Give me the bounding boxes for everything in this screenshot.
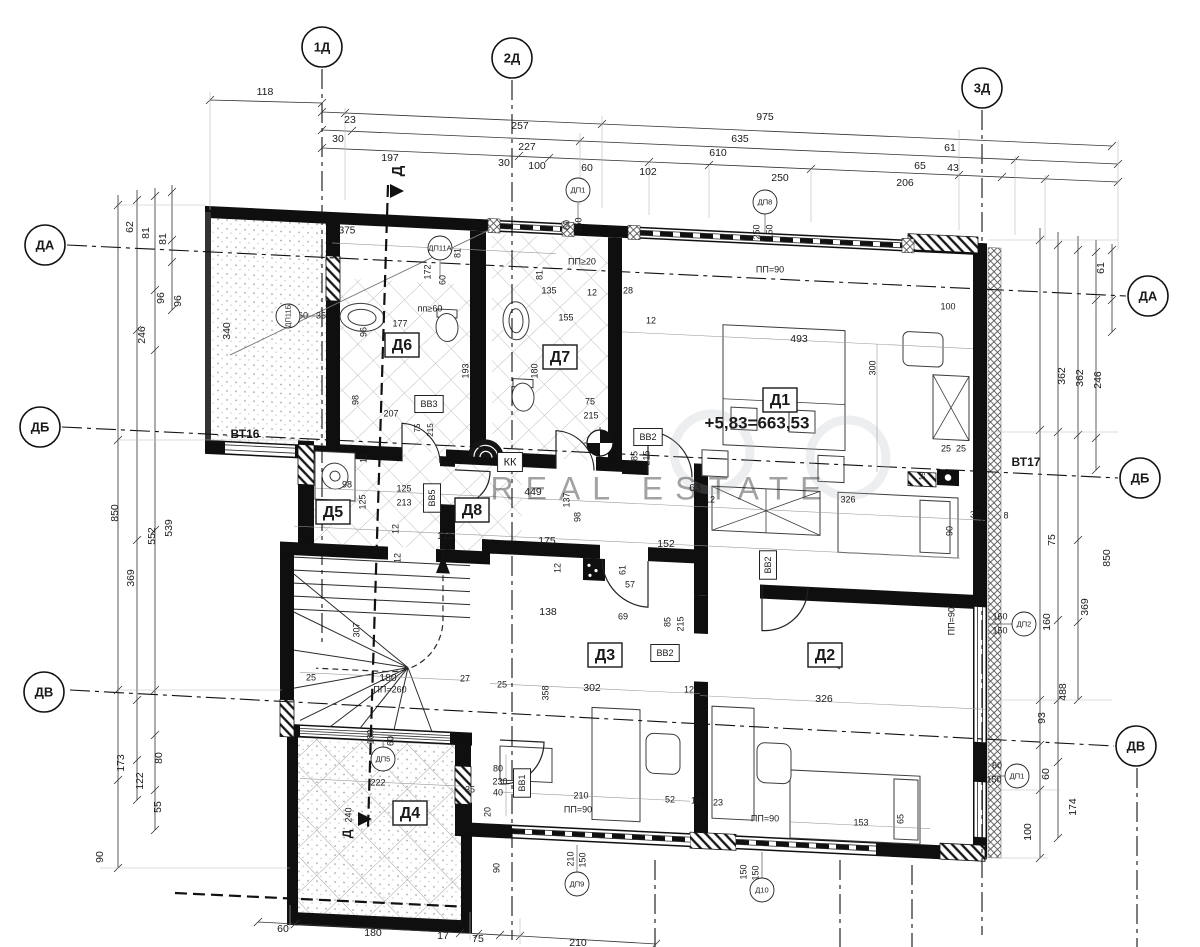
dim-text: 35 (316, 310, 326, 320)
fixture-tag-ДП5: ДП5 (371, 747, 395, 771)
blueprint-page: 1182325797530227635610197301006010225061… (0, 0, 1200, 947)
boxed-label: BB2 (651, 645, 679, 662)
dim-text: 61 (1095, 262, 1107, 274)
room-label-text: Д8 (462, 502, 482, 519)
room-label-Д4: Д4 (393, 801, 427, 825)
dim-text: 100 (940, 301, 955, 311)
axis-bubble-ДВ: ДВ (1116, 726, 1156, 766)
dim-text: 60 (992, 760, 1002, 770)
dim-text: 25 (497, 679, 507, 689)
dim-text: 20 (482, 807, 492, 817)
room-label-Д2: Д2 (808, 643, 842, 667)
dim-text: 610 (709, 147, 727, 159)
axis-bubble-text: ДБ (31, 419, 50, 434)
dim-text: 98 (572, 512, 582, 522)
dim-text: 152 (657, 538, 675, 550)
dim-text: 227 (518, 141, 536, 153)
room-label-Д6: Д6 (385, 333, 419, 357)
boxed-label-text: КК (504, 456, 517, 468)
boxed-label-text: BB1 (517, 774, 527, 791)
dim-text: пп≥60 (418, 303, 443, 313)
dim-text: 93 (1036, 712, 1048, 724)
dim-text: ВТ17 (1012, 455, 1041, 469)
dim-text: 362 (1074, 369, 1086, 387)
boxed-label-text: BB2 (656, 648, 673, 658)
dim-text: 138 (539, 606, 557, 618)
dim-text: 98 (350, 395, 360, 405)
dim-text: 850 (109, 504, 121, 522)
dim-text: 81 (140, 227, 152, 239)
room-label-Д3: Д3 (588, 643, 622, 667)
dim-text: 90 (944, 526, 954, 536)
dim-text: 40 (493, 787, 503, 797)
dim-text: 369 (1079, 598, 1091, 616)
dim-text: 12 (390, 524, 400, 534)
dim-text: 100 (1022, 823, 1034, 841)
dim-text: 8 (1003, 510, 1008, 520)
fixture-tag-ДП11А: ДП11А (428, 236, 452, 260)
boxed-label: BB3 (415, 396, 443, 413)
dim-text: 150 (986, 774, 1001, 784)
dim-text: 250 (751, 224, 761, 239)
dim-text: 17 (437, 930, 449, 942)
dim-text: 302 (583, 682, 601, 694)
axis-bubble-ДА: ДА (1128, 276, 1168, 316)
dim-text: 215 (583, 410, 598, 420)
dim-text: Д (340, 829, 354, 838)
dim-text: 230 (492, 776, 507, 786)
dim-text: 12 (646, 315, 656, 325)
dim-text: 552 (146, 527, 158, 545)
dim-text: 153 (853, 817, 868, 827)
dim-text: 135 (541, 285, 556, 295)
dim-text: 125 (357, 494, 367, 509)
dim-text: ПП≥20 (568, 256, 596, 266)
dim-text: 362 (1056, 367, 1068, 385)
dim-text: 300 (867, 360, 877, 375)
dim-text: 118 (257, 86, 274, 98)
dim-text: 172 (422, 264, 432, 279)
dim-text: 12 (684, 684, 694, 694)
dim-text: 100 (528, 160, 546, 172)
fixture-tag-text: ДП1 (571, 185, 586, 194)
dim-text: 90 (94, 851, 106, 863)
dim-text: 850 (1101, 549, 1113, 567)
dim-text: 240 (343, 807, 353, 822)
dim-text: 155 (558, 312, 573, 322)
dim-text: 81 (157, 233, 169, 245)
fixture-tag-ДП2: ДП2 (1012, 612, 1036, 636)
boxed-label: BB2 (760, 551, 777, 579)
room-label-text: Д3 (595, 647, 615, 664)
dim-text: 326 (815, 693, 833, 705)
dim-text: 60 (437, 275, 447, 285)
fixture-tag-text: ДП2 (1017, 619, 1032, 628)
axis-bubble-ДБ: ДБ (20, 407, 60, 447)
dim-text: 160 (1041, 613, 1053, 631)
dim-text: 81 (452, 248, 462, 258)
dim-text: ВТ16 (231, 427, 260, 441)
dim-text: 75 (472, 933, 484, 945)
dim-text: 25 (306, 672, 316, 682)
axis-bubble-2Д: 2Д (492, 38, 532, 78)
axis-bubble-ДБ: ДБ (1120, 458, 1160, 498)
dim-text: 43 (947, 162, 959, 174)
fixture-tag-text: ДП9 (570, 879, 585, 888)
dim-text: 55 (152, 801, 164, 813)
staircase (294, 548, 470, 733)
fixture-tag-text: ДП8 (758, 197, 773, 206)
dim-text: 210 (565, 851, 575, 866)
dim-text: 539 (163, 519, 175, 537)
fixture-tag-ДП9: ДП9 (565, 872, 589, 896)
dim-text: 62 (124, 221, 136, 233)
room-label-text: Д6 (392, 337, 412, 354)
dim-text: ПП=90 (564, 804, 592, 814)
dim-text: 215 (675, 616, 685, 631)
dim-text: 96 (155, 292, 167, 304)
fixture-tag-text: ДП5 (376, 754, 391, 763)
dim-text: 222 (370, 777, 385, 787)
dim-text: 180 (365, 729, 375, 744)
fixture-tag-ДП1: ДП1 (1005, 764, 1029, 788)
dim-text: 246 (136, 326, 148, 344)
dim-text: 52 (665, 794, 675, 804)
dim-text: 207 (383, 408, 398, 418)
dim-text: 98 (342, 479, 352, 489)
dim-text: 111 (437, 530, 453, 542)
dim-text: 246 (1092, 371, 1104, 389)
fixture-tag-ДП8: ДП8 (753, 190, 777, 214)
dim-text: 177 (392, 318, 407, 328)
dim-text: 12 (691, 795, 701, 805)
boxed-label-text: BB2 (639, 432, 656, 442)
dim-text: 975 (756, 111, 774, 123)
dim-text: 150 (577, 852, 587, 867)
dim-text: ПП=90 (751, 813, 779, 823)
dim-text: 65 (895, 814, 905, 824)
dim-text: ПП=260 (373, 684, 406, 694)
dim-text: 27 (460, 673, 470, 683)
dim-text: 122 (134, 772, 146, 790)
floorplan-canvas: 1182325797530227635610197301006010225061… (0, 0, 1200, 947)
dim-text: 25 (956, 443, 966, 453)
dim-text: 215 (641, 450, 651, 465)
dim-text: ПП=90 (756, 264, 784, 274)
room-label-Д1: Д1 (763, 388, 797, 412)
dim-text: 180 (364, 927, 382, 939)
dim-text: 12 (392, 553, 402, 563)
dim-text: 65 (914, 160, 926, 172)
dim-text: 193 (460, 363, 470, 378)
room-label-text: Д1 (770, 392, 790, 409)
dim-text: 102 (639, 166, 657, 178)
dim-text: 35 (465, 784, 475, 794)
dim-text: 85 (662, 617, 672, 627)
dim-text: 174 (1067, 798, 1079, 816)
dim-text: 25 (941, 443, 951, 453)
dim-text: 30 (332, 133, 344, 145)
room-label-Д8: Д8 (455, 498, 489, 522)
boxed-label: КК (498, 453, 523, 472)
dim-text: 326 (840, 494, 855, 504)
axis-bubble-3Д: 3Д (962, 68, 1002, 108)
dim-text: 75 (413, 423, 422, 432)
section-arrow-top (390, 184, 404, 198)
dim-text: Д (389, 165, 406, 176)
room-label-text: Д5 (323, 504, 343, 521)
room-label-Д5: Д5 (316, 500, 350, 524)
room-label-Д7: Д7 (543, 345, 577, 369)
dim-text: ПП=90. (946, 605, 956, 636)
boxed-label: BB2 (634, 429, 662, 446)
dim-text: +5,83=663,53 (705, 413, 810, 432)
dim-text: 197 (381, 152, 399, 164)
dim-text: 180 (379, 672, 397, 684)
axis-bubble-text: 2Д (504, 50, 521, 65)
dim-text: 81 (534, 270, 544, 280)
dim-text: 12 (358, 453, 368, 463)
axis-bubble-1Д: 1Д (302, 27, 342, 67)
dim-text: 257 (511, 120, 529, 132)
fixture-tag-text: Д10 (755, 885, 768, 894)
dim-text: 493 (790, 333, 808, 345)
dim-text: 635 (731, 133, 749, 145)
dim-text: 60 (385, 736, 395, 746)
room-label-text: Д7 (550, 349, 570, 366)
dim-text: 175 (538, 535, 556, 547)
dim-text: REAL ESTATE (490, 470, 833, 506)
axis-bubble-text: 3Д (974, 80, 991, 95)
dim-text: 61 (617, 565, 627, 575)
boxed-label-text: BB3 (420, 399, 437, 409)
boxed-label: BB5 (424, 484, 441, 512)
dim-text: 180 (529, 363, 539, 378)
dim-text: 210 (569, 937, 587, 947)
dim-text: 60 (1040, 768, 1052, 780)
dim-text: 96 (358, 327, 368, 337)
dim-text: 369 (125, 569, 137, 587)
dim-text: 19 (918, 471, 927, 480)
dim-text: 375 (339, 226, 356, 237)
boxed-label-text: BB2 (763, 556, 773, 573)
dim-text: 488 (1057, 683, 1069, 701)
fixture-tag-text: ДП11А (428, 243, 451, 252)
dim-text: 307 (351, 622, 361, 637)
dim-text: 250 (771, 172, 789, 184)
fixture-tag-Д10: Д10 (750, 878, 774, 902)
dim-text: 23 (713, 797, 723, 807)
dim-text: 60 (581, 162, 593, 174)
dim-text: 150 (764, 224, 774, 239)
fixture-tag-ДП11Б: ДП11Б (276, 304, 300, 328)
dim-text: 210 (573, 790, 588, 800)
dim-text: 69 (618, 611, 628, 621)
axis-bubble-text: ДБ (1131, 470, 1150, 485)
dim-text: 150 (573, 217, 583, 232)
fixture-tag-ДП1: ДП1 (566, 178, 590, 202)
dim-text: 150 (992, 625, 1007, 635)
dim-text: 28 (623, 285, 633, 295)
room-label-text: Д4 (400, 805, 420, 822)
axis-bubble-text: 1Д (314, 39, 331, 54)
dim-text: 213 (396, 497, 411, 507)
fixture-tag-text: ДП11Б (283, 304, 292, 327)
dim-text: 206 (896, 177, 914, 189)
axis-bubble-ДВ: ДВ (24, 672, 64, 712)
boxed-label: BB1 (514, 769, 531, 797)
dim-text: 85 (629, 451, 639, 461)
axis-bubble-text: ДА (36, 237, 55, 252)
dim-text: 60 (277, 923, 289, 935)
dim-text: 12 (587, 287, 597, 297)
dim-text: 35 (970, 509, 980, 519)
dim-text: 57 (625, 579, 635, 589)
dim-text: 358 (540, 685, 550, 700)
dim-text: 215 (426, 423, 435, 437)
dim-text: 80 (153, 752, 165, 764)
axis-bubble-ДА: ДА (25, 225, 65, 265)
dim-text: 12 (552, 563, 562, 573)
dim-text: 160 (992, 611, 1007, 621)
dim-text: 173 (115, 754, 127, 772)
dim-text: 96 (172, 295, 184, 307)
dim-text: 23 (344, 114, 356, 126)
dim-text: 75 (1046, 534, 1058, 546)
dim-text: 30 (498, 157, 510, 169)
axis-bubble-text: ДА (1139, 288, 1158, 303)
dim-text: 61 (944, 142, 956, 154)
room-label-text: Д2 (815, 647, 835, 664)
dim-text: 80 (493, 763, 503, 773)
dim-text: 125 (396, 483, 411, 493)
boxed-label-text: BB5 (427, 489, 437, 506)
dim-text: 340 (221, 322, 233, 340)
dim-text: 75 (585, 396, 595, 406)
axis-bubble-text: ДВ (1127, 738, 1146, 753)
dim-text: 90 (491, 863, 501, 873)
axis-bubble-text: ДВ (35, 684, 54, 699)
dim-text: 150 (738, 864, 748, 879)
fixture-tag-text: ДП1 (1010, 771, 1025, 780)
dim-text: 60 (561, 220, 571, 230)
